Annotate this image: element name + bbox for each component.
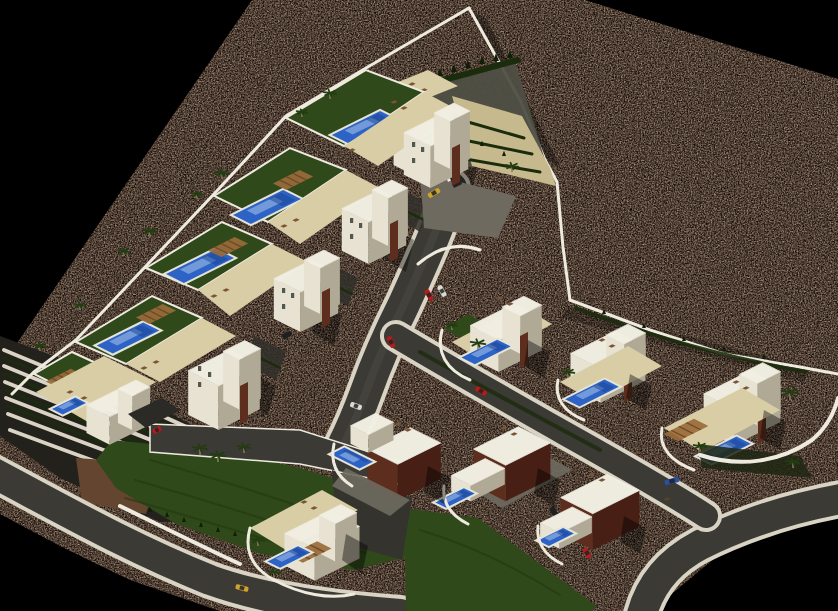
window [350,234,353,239]
villa4-tower-upper [223,351,239,409]
window [208,372,211,377]
brick-accent [390,220,398,262]
screenshot-root [0,0,838,611]
window [350,218,353,223]
window [198,382,201,387]
brick-accent [240,382,248,424]
villa3-tower-upper [304,260,320,314]
window [282,304,285,309]
window [291,293,294,298]
villa1-tower-upper [434,113,450,169]
window [421,147,424,152]
window [282,288,285,293]
window [412,158,415,163]
window [198,366,201,371]
scene-layer [0,0,838,611]
brick-accent [322,288,330,328]
window [359,223,362,228]
window [412,142,415,147]
villa-development-render [0,0,838,611]
villa2-tower-upper [372,190,388,246]
brick-accent [452,144,460,186]
